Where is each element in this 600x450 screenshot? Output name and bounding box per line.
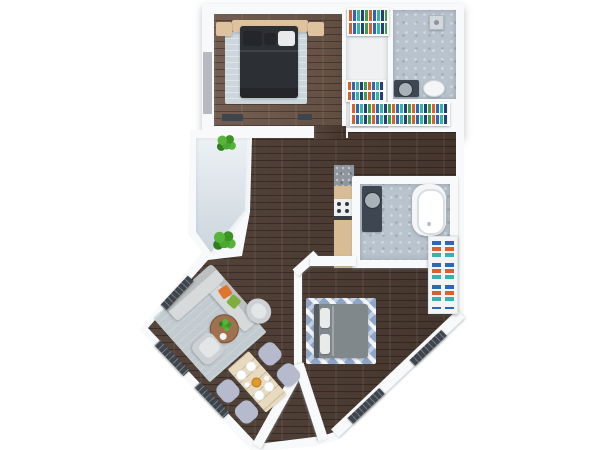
- kitchen-stove: [334, 199, 354, 220]
- hanging-clothes: [348, 92, 384, 100]
- bedroom1-nightstand-left: [216, 22, 232, 36]
- bathtub-basin: [417, 189, 445, 235]
- bed-pillow-white: [278, 31, 295, 46]
- bed-blanket-edge: [240, 88, 298, 98]
- stove-burner: [337, 209, 341, 213]
- stove-burner: [337, 202, 341, 206]
- folded-clothes-column: [432, 241, 441, 309]
- wardrobe-shelves: [428, 236, 458, 314]
- coffee-table-dish: [218, 332, 228, 342]
- bedroom1-dresser: [222, 114, 243, 121]
- bed-pillow-white: [320, 308, 330, 328]
- balcony-plant-icon: [216, 134, 237, 152]
- coffee-table-plant-icon: [217, 316, 235, 334]
- bed-duvet-fold: [332, 306, 334, 356]
- bathroom-sink: [364, 192, 381, 209]
- bedroom2-wall-top: [310, 256, 356, 266]
- bedroom1-window: [203, 52, 212, 114]
- balcony-plant-icon: [212, 230, 237, 251]
- bedroom1-console: [298, 114, 312, 120]
- shower-fixture-icon: [429, 15, 444, 30]
- hanging-clothes: [352, 115, 448, 124]
- bedroom1-door-opening: [314, 126, 346, 140]
- toilet-icon: [423, 80, 445, 97]
- stove-burner: [345, 209, 349, 213]
- bedroom1-bed: [240, 26, 298, 98]
- clothes-rack-middle: [346, 80, 386, 102]
- bathtub-drain: [427, 222, 431, 226]
- bedroom2-wall-vertical: [294, 268, 302, 372]
- bedroom2-bed: [314, 304, 368, 358]
- bedroom1-nightstand-right: [308, 22, 324, 36]
- floor-plan: [0, 0, 600, 450]
- clothes-rack-top: [347, 8, 389, 36]
- stove-burner: [345, 202, 349, 206]
- clothes-rack-wide: [350, 102, 450, 126]
- armchair-seat: [248, 300, 269, 321]
- hanging-clothes: [349, 10, 387, 21]
- hanging-clothes: [352, 104, 448, 113]
- shower-head: [434, 20, 439, 25]
- hanging-clothes: [349, 23, 387, 34]
- kitchen-cabinet: [334, 186, 354, 199]
- kitchen-granite-counter: [334, 165, 354, 186]
- hanging-clothes: [348, 82, 384, 90]
- bathtub: [412, 184, 446, 236]
- bed-fold-line: [240, 50, 298, 52]
- bed-pillow-white: [320, 334, 330, 354]
- bed-headboard: [314, 304, 319, 358]
- cup: [244, 381, 251, 388]
- shower-room-sink: [398, 82, 413, 97]
- bed-pillow: [264, 33, 276, 45]
- centerpiece-bowl: [249, 375, 263, 389]
- folded-clothes-column: [445, 241, 454, 309]
- bed-pillow: [243, 31, 262, 46]
